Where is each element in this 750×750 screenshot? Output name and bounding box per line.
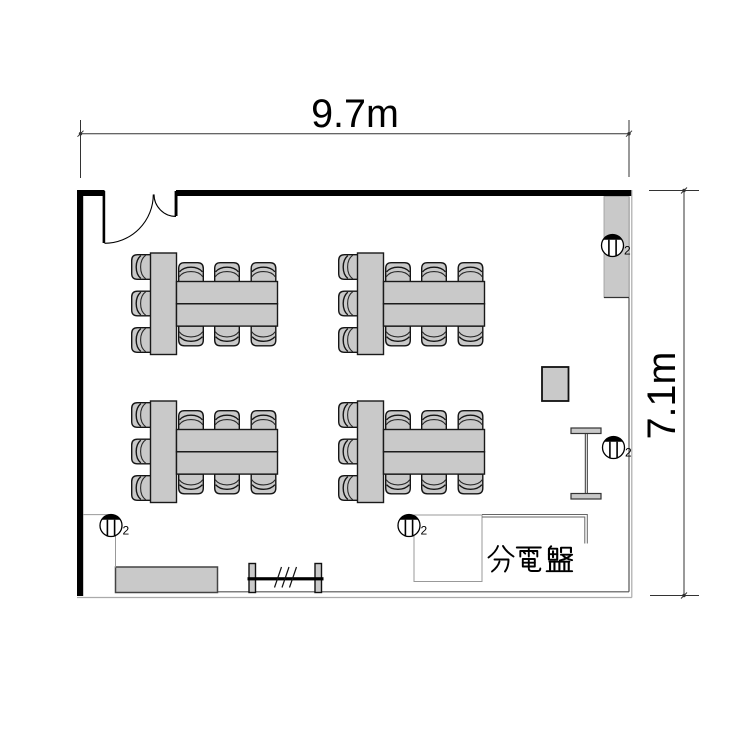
svg-text:9.7m: 9.7m (311, 92, 399, 136)
svg-text:7.1m: 7.1m (640, 352, 684, 440)
